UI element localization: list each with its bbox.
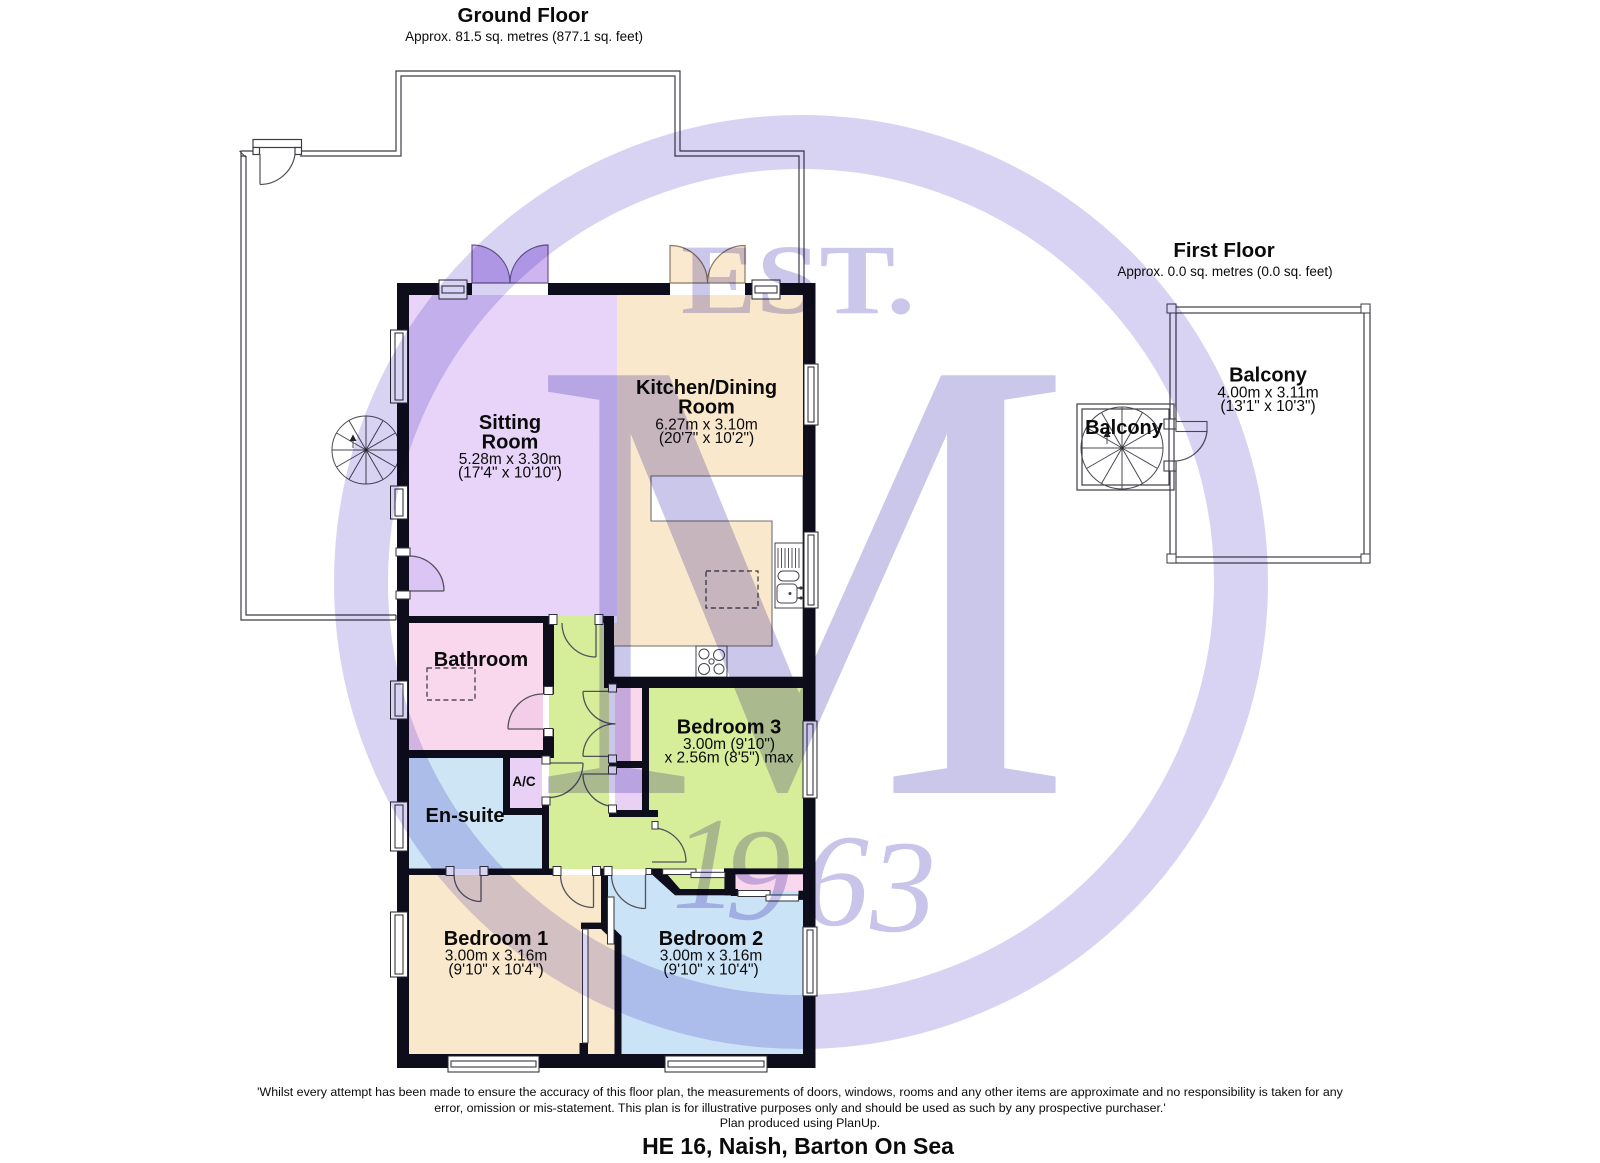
svg-text:HE 16, Naish, Barton On Sea: HE 16, Naish, Barton On Sea: [642, 1133, 954, 1159]
svg-text:9: 9: [725, 801, 791, 948]
svg-text:(9'10" x 10'4"): (9'10" x 10'4"): [448, 962, 543, 979]
svg-text:First Floor: First Floor: [1173, 239, 1274, 262]
svg-text:(9'10" x 10'4"): (9'10" x 10'4"): [663, 962, 758, 979]
svg-text:'Whilst every attempt has been: 'Whilst every attempt has been made to e…: [257, 1085, 1344, 1099]
svg-text:3: 3: [869, 813, 936, 960]
svg-text:Ground Floor: Ground Floor: [458, 4, 589, 27]
svg-text:Plan produced using PlanUp.: Plan produced using PlanUp.: [720, 1116, 881, 1130]
svg-text:6: 6: [803, 807, 869, 954]
svg-text:M: M: [531, 225, 1074, 932]
svg-text:Balcony: Balcony: [1085, 417, 1164, 439]
svg-text:Balcony: Balcony: [1229, 365, 1308, 387]
svg-text:error, omission or mis-stateme: error, omission or mis-statement. This p…: [434, 1101, 1165, 1115]
svg-text:Bathroom: Bathroom: [434, 649, 528, 671]
svg-text:Approx. 81.5 sq. metres (877.1: Approx. 81.5 sq. metres (877.1 sq. feet): [405, 29, 643, 44]
